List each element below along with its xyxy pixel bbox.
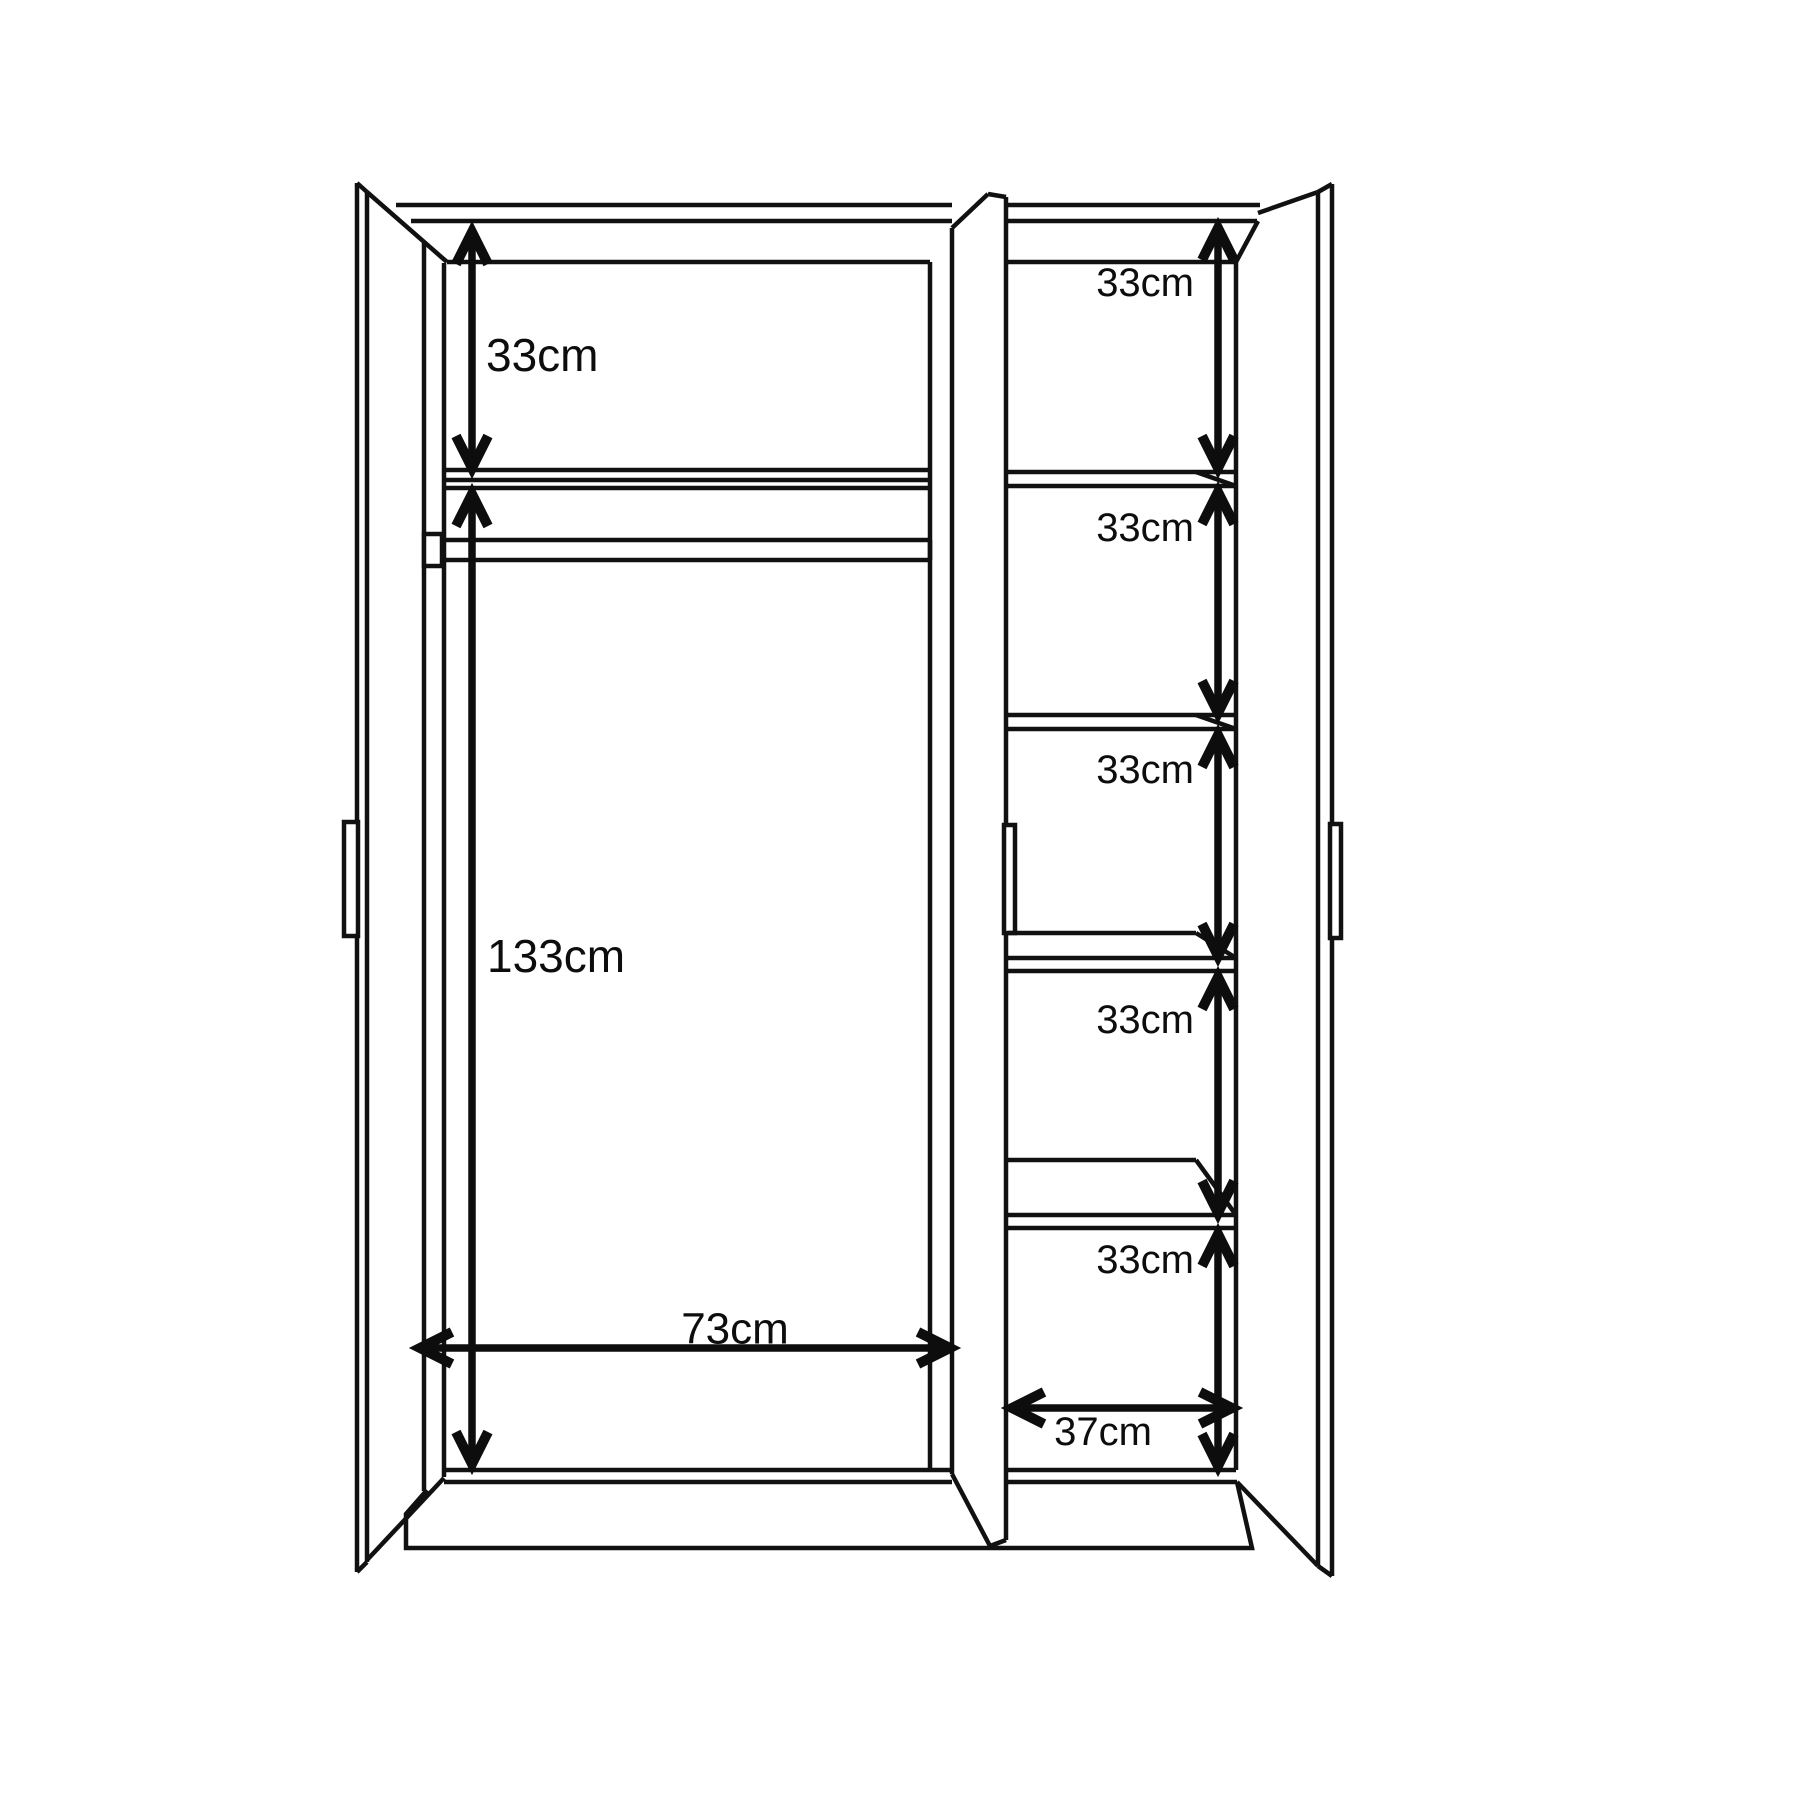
left-door — [344, 183, 447, 1572]
label-right-shelf-4: 33cm — [1096, 998, 1194, 1042]
dim-arrow-right-shelf-2 — [1202, 492, 1234, 713]
right-door-handle — [1330, 824, 1341, 938]
label-left-width: 73cm — [681, 1305, 789, 1354]
label-right-shelf-5: 33cm — [1096, 1238, 1194, 1282]
dim-arrow-left-top-shelf — [456, 232, 488, 468]
plinth — [406, 1482, 1252, 1548]
right-shelf-column — [1008, 472, 1236, 1228]
dim-arrow-right-shelf-3 — [1202, 735, 1234, 956]
drawing-canvas: 33cm 133cm 73cm 33cm 33cm 33cm 33cm 33cm… — [0, 0, 1800, 1800]
rail-bracket — [424, 534, 442, 566]
label-right-shelf-3: 33cm — [1096, 748, 1194, 792]
label-hanging-height: 133cm — [487, 930, 625, 982]
right-door — [1237, 184, 1341, 1576]
label-right-shelf-1: 33cm — [1096, 261, 1194, 305]
middle-door — [952, 194, 1015, 1546]
label-right-width: 37cm — [1054, 1410, 1152, 1454]
middle-door-handle — [1004, 825, 1015, 933]
wardrobe-technical-drawing: 33cm 133cm 73cm 33cm 33cm 33cm 33cm 33cm… — [0, 0, 1800, 1800]
left-compartment-shelf — [444, 470, 930, 488]
hanging-rail — [424, 534, 930, 566]
dim-arrow-hanging-height — [456, 494, 488, 1464]
label-right-shelf-2: 33cm — [1096, 506, 1194, 550]
label-left-top-shelf: 33cm — [486, 329, 598, 381]
dimension-labels: 33cm 133cm 73cm 33cm 33cm 33cm 33cm 33cm… — [486, 261, 1194, 1454]
dim-arrow-right-shelf-5 — [1202, 1234, 1234, 1466]
left-door-handle — [344, 822, 358, 936]
